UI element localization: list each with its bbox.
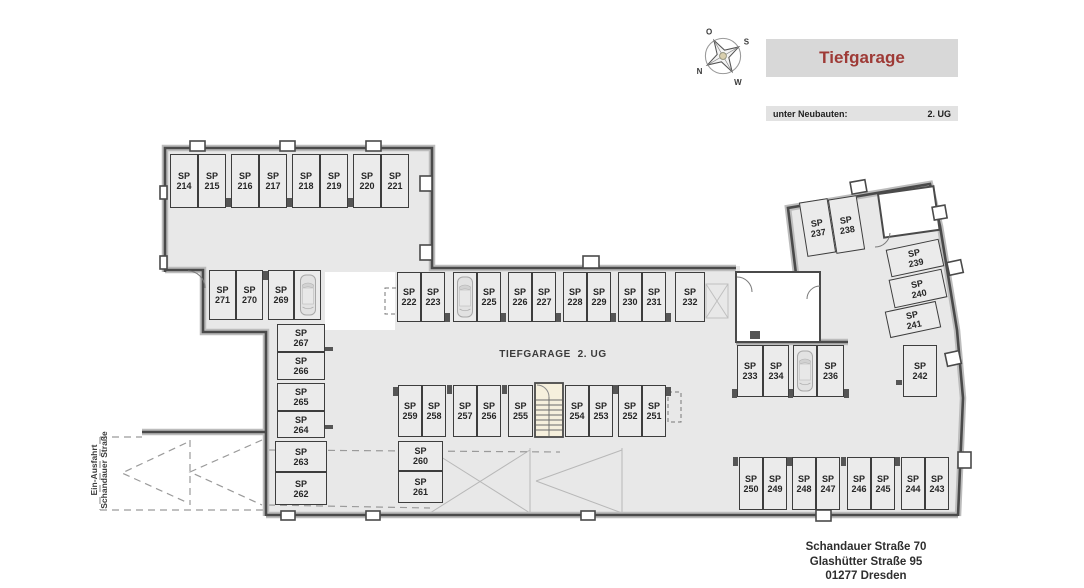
page-title: Tiefgarage	[819, 48, 905, 68]
compass-west-label: W	[734, 78, 742, 87]
compass-east-label: O	[706, 28, 712, 37]
floorplan-page: SP214SP215SP216SP217SP218SP219SP220SP221…	[0, 0, 1084, 588]
compass-icon: O S W N	[691, 24, 755, 88]
entrance-label: Ein-Ausfahrt Schandauer Straße	[89, 414, 109, 526]
address-block: Schandauer Straße 70 Glashütter Straße 9…	[756, 540, 976, 584]
compass-north-label: N	[697, 67, 703, 76]
address-line1: Schandauer Straße 70	[756, 540, 976, 555]
address-line2: Glashütter Straße 95	[756, 555, 976, 570]
cars-layer	[0, 0, 1084, 588]
car-icon	[299, 274, 317, 316]
car-icon	[796, 350, 814, 392]
entrance-line2: Schandauer Straße	[99, 414, 109, 526]
car-icon	[456, 276, 474, 318]
subtitle-bar: unter Neubauten: 2. UG	[766, 106, 958, 121]
entrance-line1: Ein-Ausfahrt	[89, 414, 99, 526]
title-box: Tiefgarage	[766, 39, 958, 77]
subtitle-left-label: unter Neubauten:	[773, 109, 848, 119]
address-line3: 01277 Dresden	[756, 569, 976, 584]
garage-area-label: TIEFGARAGE 2. UG	[468, 349, 638, 360]
compass-south-label: S	[744, 37, 750, 46]
subtitle-level-label: 2. UG	[927, 109, 951, 119]
